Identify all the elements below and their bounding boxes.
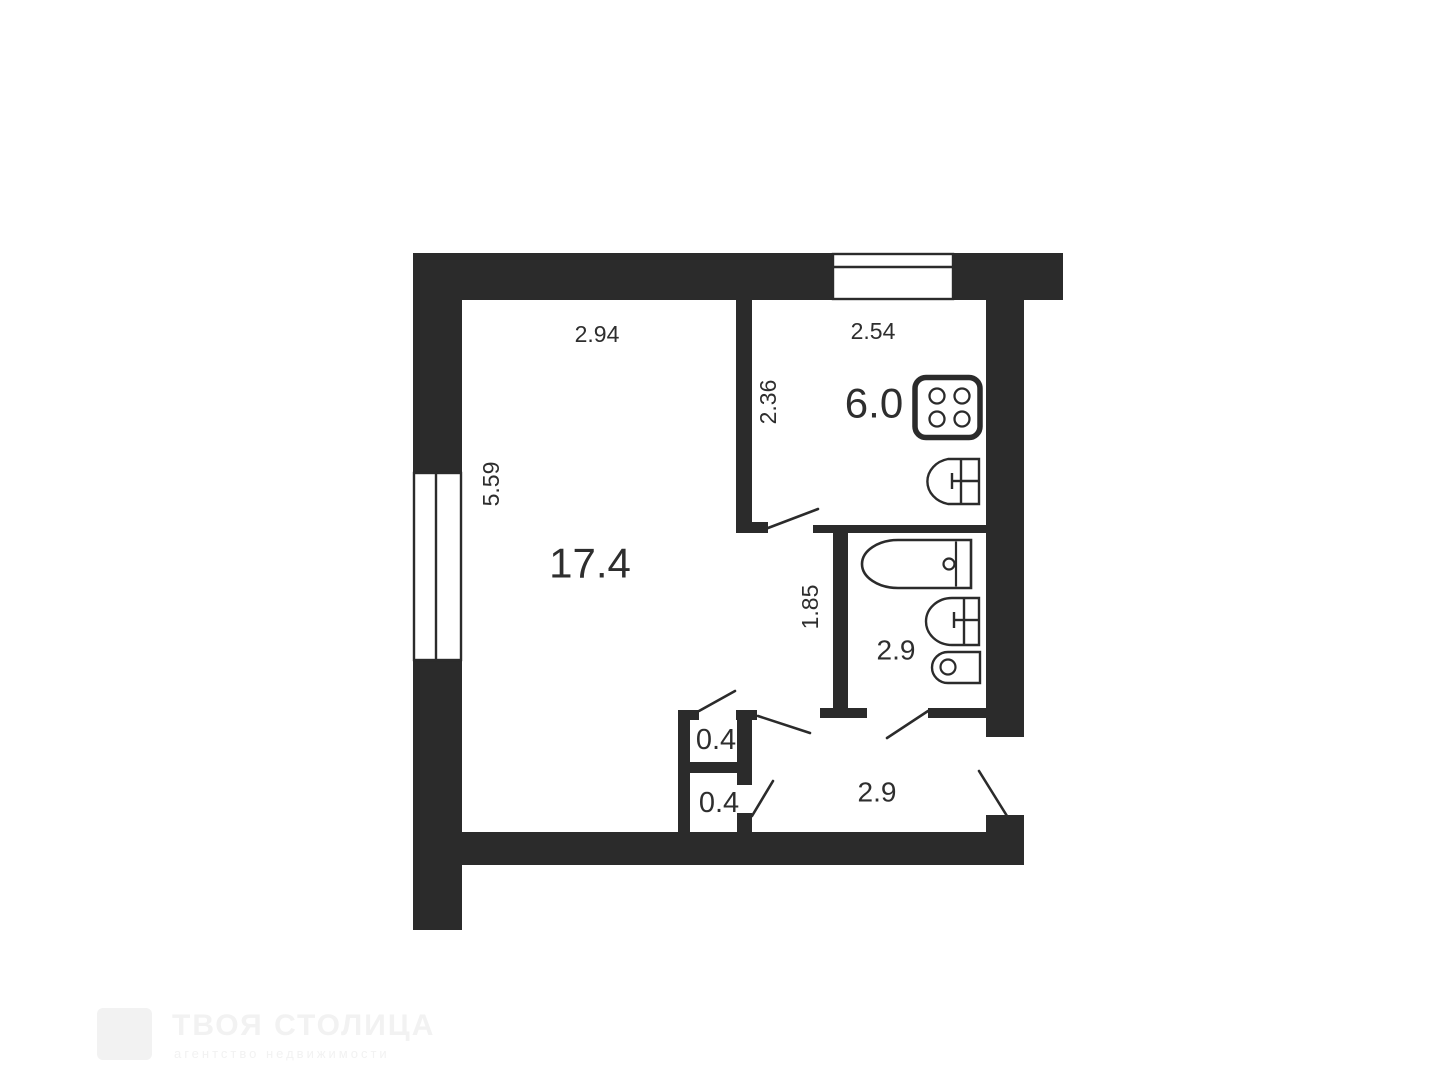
closet-right-wall bbox=[737, 710, 752, 785]
entrance-door-swing bbox=[979, 771, 1007, 816]
walls bbox=[413, 253, 1063, 930]
wall-left-upper bbox=[413, 300, 462, 473]
stove-icon bbox=[915, 378, 980, 438]
closet-top-left-jamb bbox=[690, 710, 699, 720]
bathroom-bottom-jamb bbox=[820, 708, 867, 718]
bathroom-left-wall bbox=[833, 533, 848, 708]
bathroom-bottom-wall bbox=[928, 708, 986, 718]
living-area-label: 17.4 bbox=[549, 540, 631, 587]
floor-plan: 17.4 6.0 2.9 2.9 0.4 0.4 2.94 2.54 5.59 … bbox=[0, 0, 1455, 1090]
kitchen-width-dim: 2.54 bbox=[851, 318, 896, 344]
partition-foot-jamb bbox=[736, 522, 768, 533]
watermark-title: ТВОЯ СТОЛИЦА bbox=[172, 1009, 435, 1042]
bathroom-area-label: 2.9 bbox=[877, 635, 916, 666]
kitchen-sink-icon bbox=[927, 459, 979, 504]
window-living-left bbox=[414, 473, 461, 660]
hallway-area-label: 2.9 bbox=[858, 777, 897, 808]
closet-divider-wall bbox=[678, 762, 752, 773]
wall-top-left-segment bbox=[413, 253, 833, 300]
bathroom-sink-icon bbox=[926, 598, 979, 645]
wall-top-right-segment bbox=[953, 253, 1063, 300]
living-width-dim: 2.94 bbox=[575, 321, 620, 347]
watermark: ТВОЯ СТОЛИЦА агентство недвижимости bbox=[97, 1008, 435, 1061]
watermark-subtitle: агентство недвижимости bbox=[174, 1046, 390, 1061]
floor-plan-page: 17.4 6.0 2.9 2.9 0.4 0.4 2.94 2.54 5.59 … bbox=[0, 0, 1455, 1090]
bathtub-icon bbox=[862, 540, 971, 588]
partition-living-kitchen bbox=[736, 300, 752, 522]
bathroom-door-swing bbox=[887, 711, 928, 738]
living-height-dim: 5.59 bbox=[478, 462, 504, 507]
toilet-icon bbox=[932, 652, 980, 683]
entrance-jamb-block bbox=[986, 815, 1024, 865]
closet-lower-label: 0.4 bbox=[699, 787, 739, 819]
bathroom-height-dim: 1.85 bbox=[797, 585, 823, 630]
windows bbox=[414, 254, 953, 660]
wall-right bbox=[986, 300, 1024, 737]
kitchen-area-label: 6.0 bbox=[845, 380, 903, 427]
closet-upper-label: 0.4 bbox=[696, 724, 736, 756]
bathroom-top-wall bbox=[813, 525, 986, 533]
closet-upper-door-swing bbox=[699, 691, 735, 711]
kitchen-door-swing bbox=[768, 509, 818, 528]
wall-left-lower bbox=[413, 660, 462, 930]
closet-lower-door-swing bbox=[752, 781, 773, 816]
living-door-swing bbox=[758, 716, 810, 733]
watermark-logo bbox=[97, 1008, 152, 1060]
closet-right-bottom-jamb bbox=[737, 813, 752, 832]
kitchen-height-dim: 2.36 bbox=[755, 380, 781, 425]
labels: 17.4 6.0 2.9 2.9 0.4 0.4 2.94 2.54 5.59 … bbox=[478, 318, 915, 819]
wall-bottom bbox=[457, 832, 1023, 865]
window-kitchen-top bbox=[833, 254, 953, 299]
